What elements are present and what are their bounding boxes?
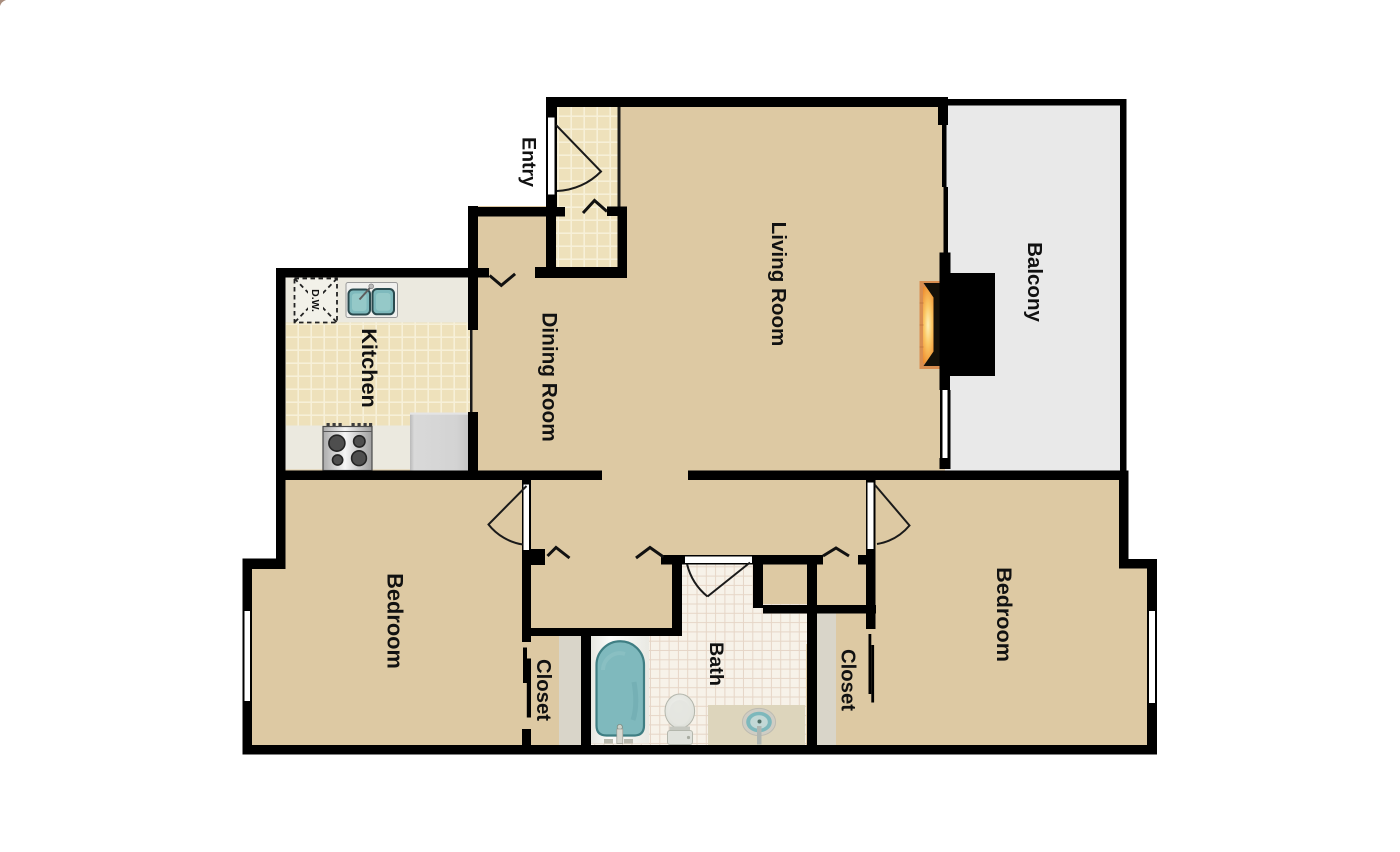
svg-text:Entry: Entry — [518, 137, 540, 187]
svg-text:Bedroom: Bedroom — [382, 573, 407, 669]
svg-text:Kitchen: Kitchen — [357, 328, 382, 408]
svg-text:Closet: Closet — [836, 649, 858, 711]
svg-text:Balcony: Balcony — [1023, 242, 1046, 322]
svg-text:Dining Room: Dining Room — [538, 312, 561, 441]
svg-text:Closet: Closet — [532, 659, 554, 721]
svg-text:Living Room: Living Room — [767, 222, 790, 347]
svg-text:D.W.: D.W. — [309, 289, 321, 312]
svg-text:Bedroom: Bedroom — [992, 567, 1017, 662]
svg-text:Bath: Bath — [705, 642, 727, 686]
